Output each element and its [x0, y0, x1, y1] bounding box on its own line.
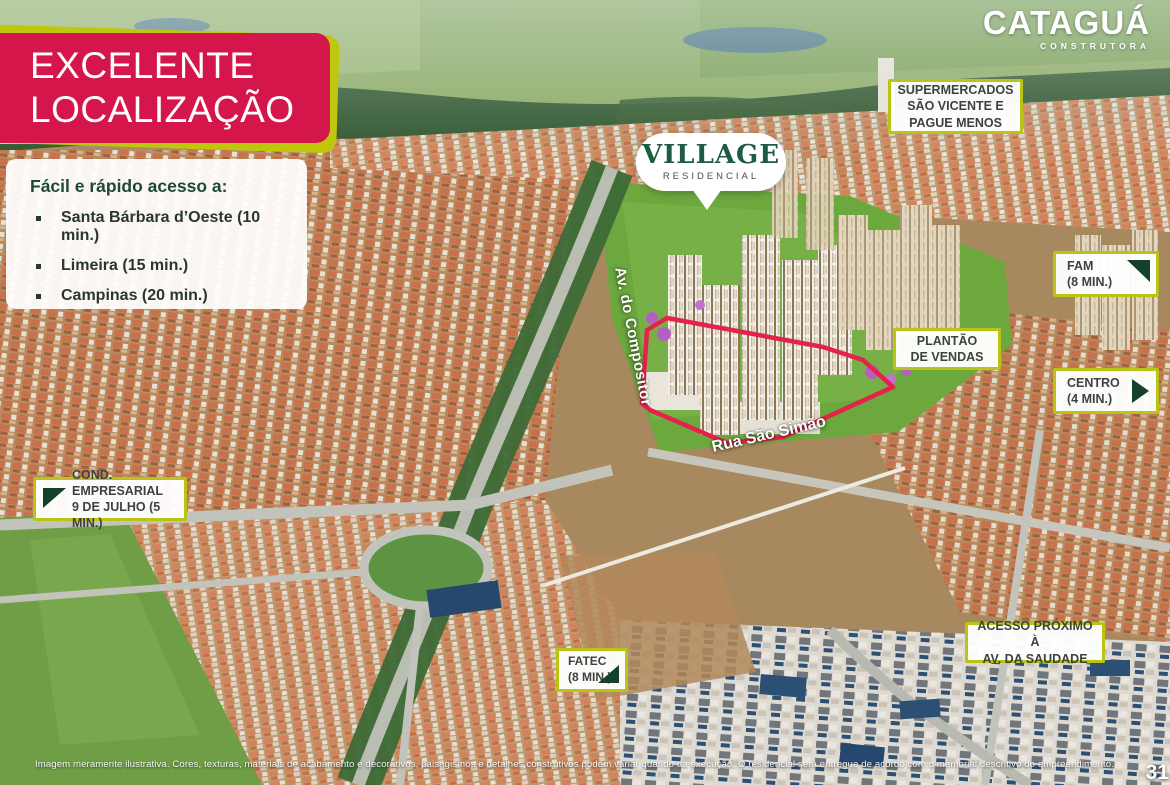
arrow-ne-icon: [1127, 260, 1150, 282]
disclaimer-text: Imagem meramente ilustrativa. Cores, tex…: [35, 759, 1140, 770]
map-label-plantao-de-vendas: PLANTÃO DE VENDAS: [893, 328, 1001, 370]
map-label-text: PLANTÃO DE VENDAS: [911, 333, 984, 366]
project-name: VILLAGE: [642, 142, 780, 168]
brochure-page: EXCELENTE LOCALIZAÇÃO Fácil e rápido ace…: [0, 0, 1170, 785]
map-label-supermercados: SUPERMERCADOS SÃO VICENTE E PAGUE MENOS: [888, 79, 1023, 134]
project-type: RESIDENCIAL: [663, 171, 759, 182]
map-label-text: FAM (8 MIN.): [1067, 258, 1112, 291]
access-card-heading: Fácil e rápido acesso a:: [30, 176, 289, 197]
page-title: EXCELENTE LOCALIZAÇÃO: [30, 44, 295, 133]
map-label-cond-empresarial: COND. EMPRESARIAL 9 DE JULHO (5 MIN.): [33, 477, 187, 521]
headline-banner: EXCELENTE LOCALIZAÇÃO: [0, 33, 330, 143]
access-list-item: Campinas (20 min.): [30, 287, 289, 305]
access-list-item: Limeira (15 min.): [30, 257, 289, 275]
page-number: 31: [1146, 761, 1169, 785]
map-label-text: CENTRO (4 MIN.): [1067, 375, 1120, 408]
arrow-right-icon: [1132, 379, 1149, 403]
brand-name: CATAGUÁ: [983, 6, 1150, 39]
map-label-acesso-saudade: ACESSO PRÓXIMO À AV. DA SAUDADE: [965, 622, 1105, 663]
arrow-sw-icon: [43, 488, 66, 508]
map-label-text: COND. EMPRESARIAL 9 DE JULHO (5 MIN.): [72, 467, 176, 532]
map-label-fam: FAM (8 MIN.): [1053, 251, 1159, 297]
access-card: Fácil e rápido acesso a: Santa Bárbara d…: [6, 159, 307, 309]
map-label-text: SUPERMERCADOS SÃO VICENTE E PAGUE MENOS: [898, 82, 1014, 131]
brand-tagline: CONSTRUTORA: [983, 41, 1150, 51]
project-logo-bubble: VILLAGE RESIDENCIAL: [636, 133, 786, 191]
map-label-text: ACESSO PRÓXIMO À AV. DA SAUDADE: [976, 618, 1094, 667]
map-label-centro: CENTRO (4 MIN.): [1053, 368, 1159, 414]
map-label-fatec: FATEC (8 MIN.): [556, 648, 628, 692]
brand-logo: CATAGUÁ CONSTRUTORA: [983, 6, 1150, 51]
bubble-pointer: [692, 189, 722, 210]
access-list-item: Santa Bárbara d’Oeste (10 min.): [30, 209, 289, 245]
access-list: Santa Bárbara d’Oeste (10 min.) Limeira …: [30, 209, 289, 305]
